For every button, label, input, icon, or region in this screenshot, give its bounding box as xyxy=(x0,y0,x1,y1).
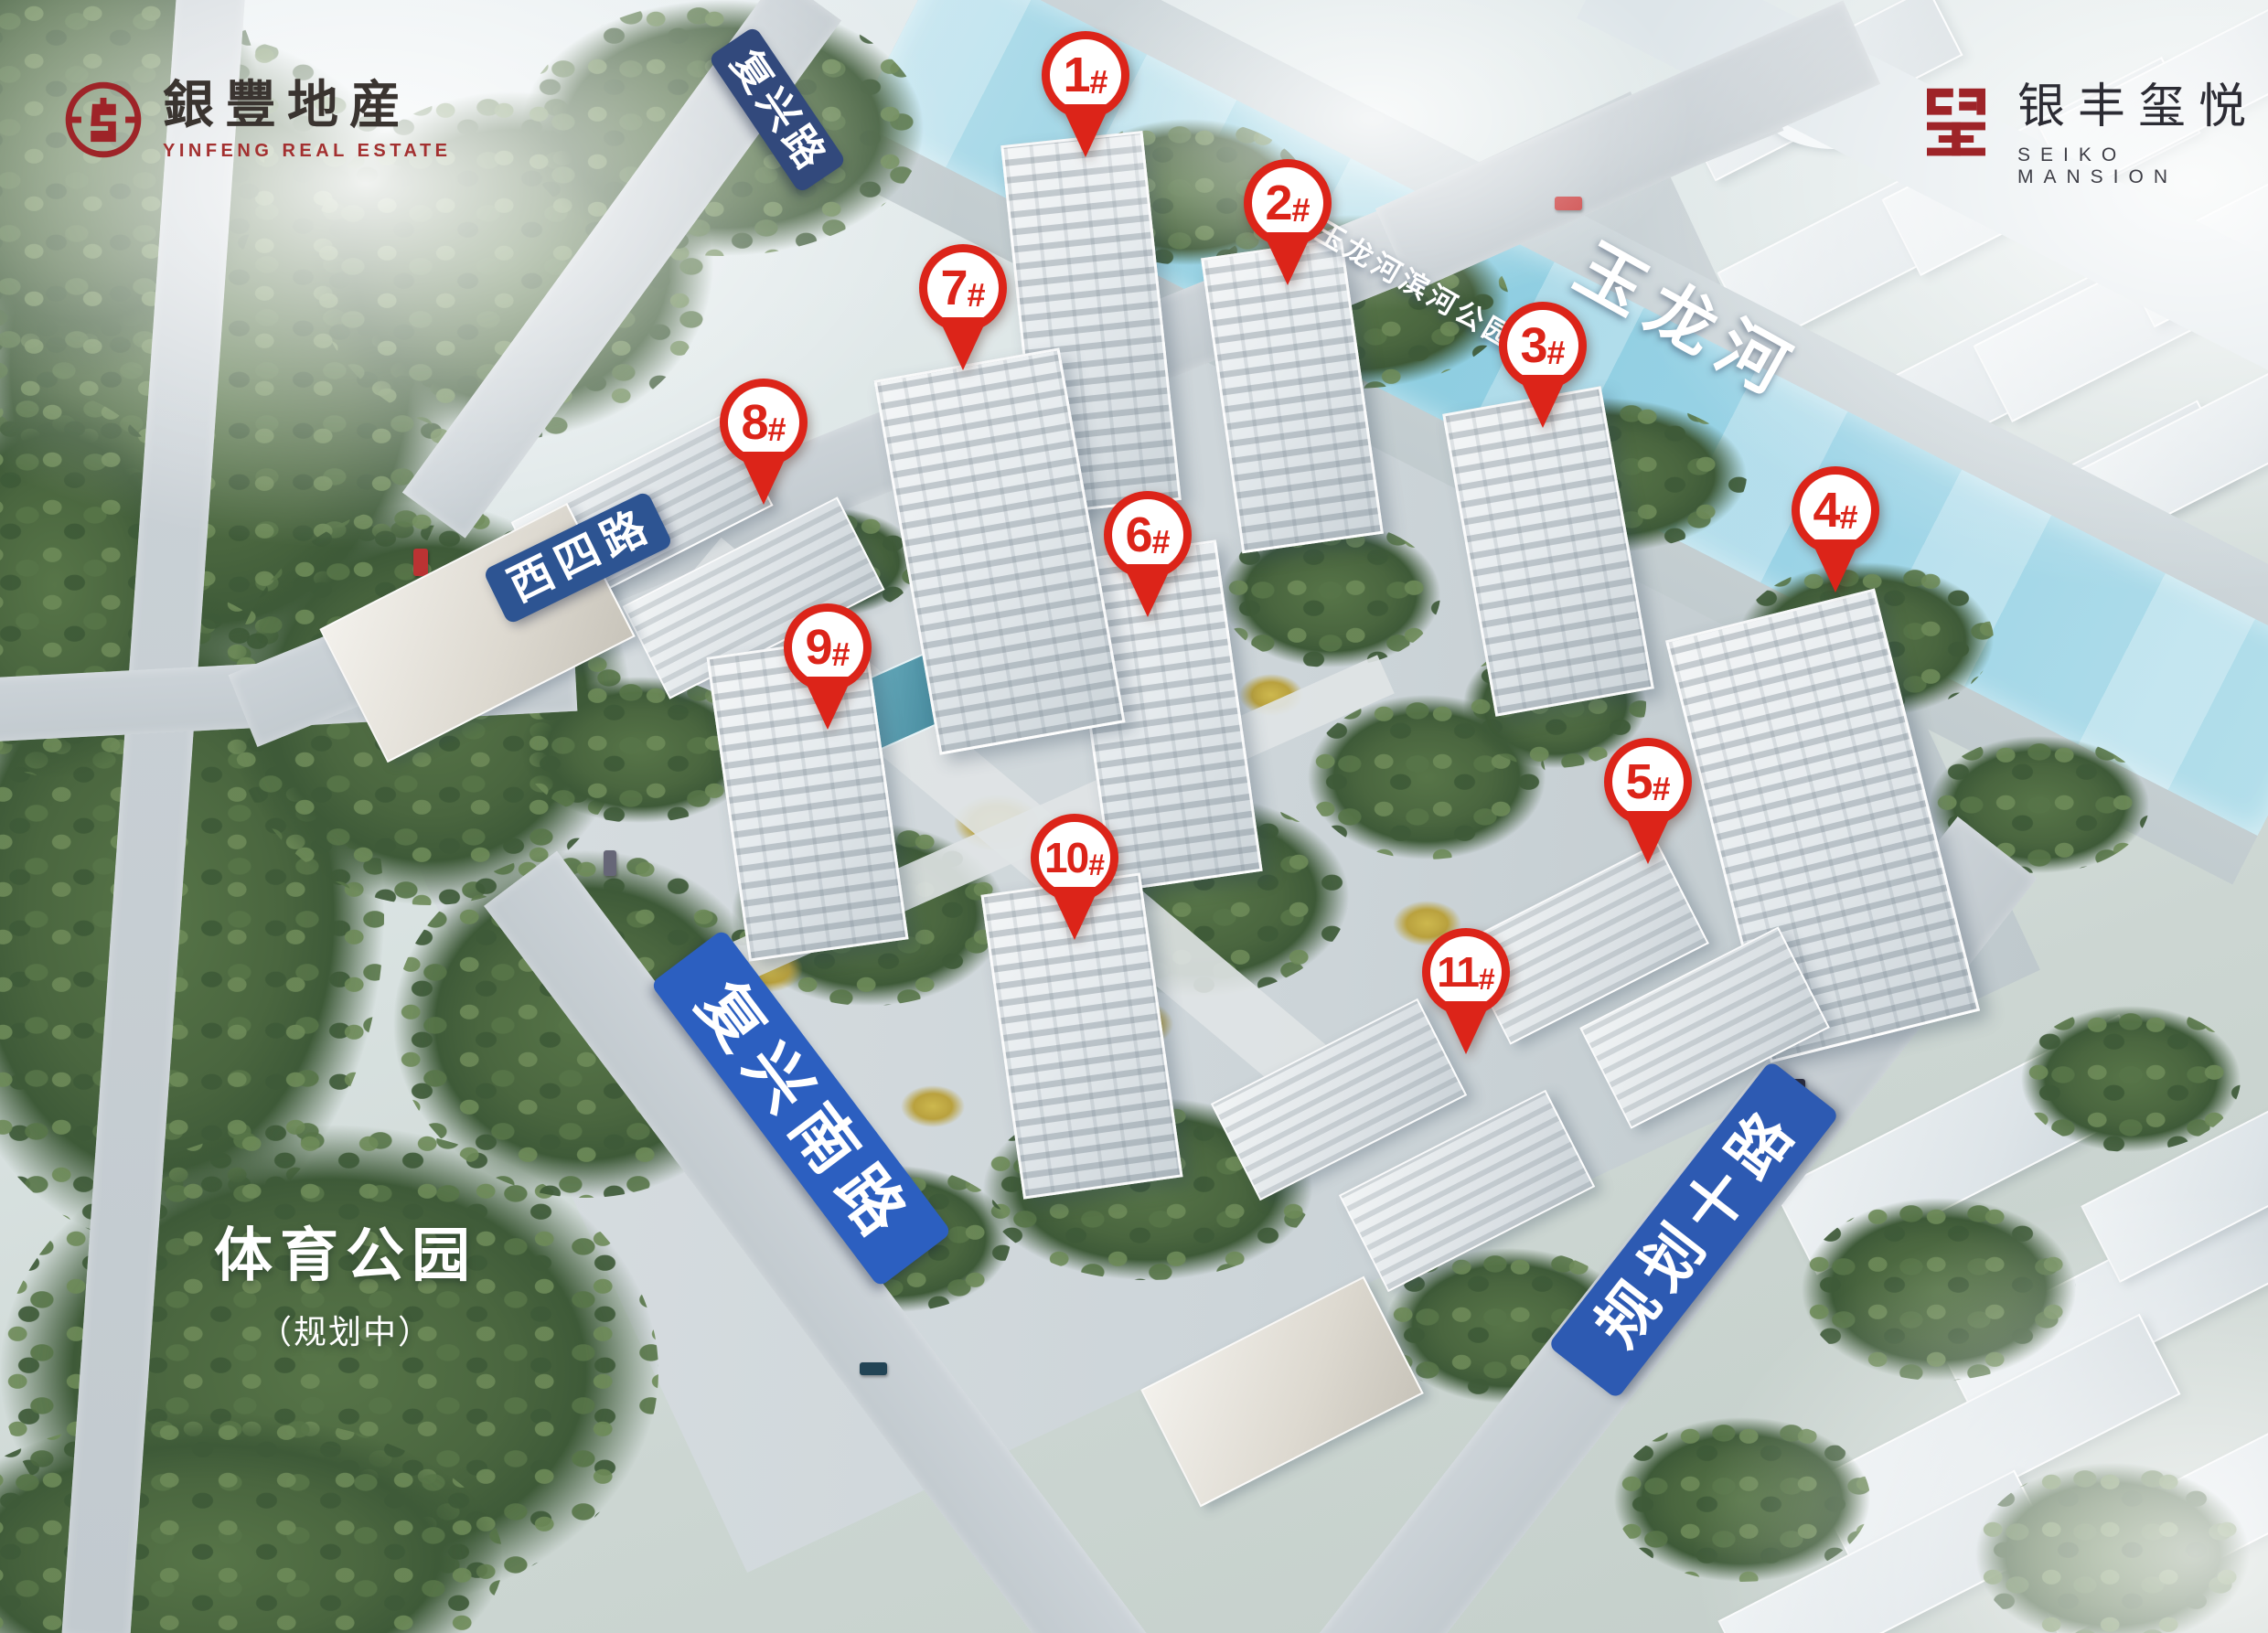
building-pin-10[interactable]: 10# xyxy=(1031,814,1118,940)
building-pin-7[interactable]: 7# xyxy=(919,244,1007,370)
pin-pointer xyxy=(1050,887,1099,940)
pin-hash-icon: # xyxy=(1547,334,1566,372)
pin-pointer xyxy=(1263,232,1312,285)
pin-number: 8 xyxy=(741,394,766,451)
pin-pointer xyxy=(803,677,852,730)
pin-number: 2 xyxy=(1265,175,1290,231)
forest-grove xyxy=(1975,1463,2250,1633)
project-logo: 银丰玺悦 SEIKO MANSION xyxy=(1919,84,2268,188)
pin-number: 7 xyxy=(940,260,966,316)
car xyxy=(604,850,616,876)
pin-number: 11 xyxy=(1437,947,1478,997)
pin-hash-icon: # xyxy=(1292,191,1311,229)
area-label-subtitle: （规划中） xyxy=(214,1306,477,1353)
car xyxy=(860,1362,887,1375)
pin-pointer xyxy=(1811,539,1860,592)
building-pin-2[interactable]: 2# xyxy=(1244,159,1332,285)
pin-number: 1 xyxy=(1063,47,1088,103)
pin-number: 5 xyxy=(1625,753,1651,810)
pin-pointer xyxy=(1441,1001,1491,1054)
yinfeng-circle-seal-icon xyxy=(64,80,143,159)
pin-pointer xyxy=(1623,811,1673,864)
pin-pointer xyxy=(1123,564,1172,617)
pin-pointer xyxy=(739,452,788,505)
pin-hash-icon: # xyxy=(1152,523,1171,561)
forest-grove xyxy=(1614,1417,1870,1582)
car xyxy=(413,549,428,576)
building-pin-11[interactable]: 11# xyxy=(1422,928,1510,1054)
pin-number: 4 xyxy=(1813,482,1838,539)
area-label-title: 体育公园 xyxy=(214,1209,477,1293)
developer-name-cn: 銀豐地産 xyxy=(163,80,452,132)
pin-number: 10 xyxy=(1044,833,1087,882)
car xyxy=(1555,197,1582,210)
pin-number: 3 xyxy=(1520,317,1546,374)
pin-hash-icon: # xyxy=(1088,849,1105,882)
pin-number: 9 xyxy=(805,619,830,676)
building-pin-9[interactable]: 9# xyxy=(784,603,872,730)
pin-hash-icon: # xyxy=(1479,963,1495,997)
building-pin-5[interactable]: 5# xyxy=(1604,738,1692,864)
forest-grove xyxy=(2021,1006,2241,1152)
pin-hash-icon: # xyxy=(1840,498,1858,537)
forest-grove xyxy=(1802,1198,2076,1381)
pin-pointer xyxy=(1518,375,1567,428)
developer-logo: 銀豐地産 YINFENG REAL ESTATE xyxy=(64,80,452,162)
pin-hash-icon: # xyxy=(968,276,986,315)
building-pin-3[interactable]: 3# xyxy=(1499,302,1587,428)
building-pin-6[interactable]: 6# xyxy=(1104,491,1192,617)
building-pin-8[interactable]: 8# xyxy=(720,379,808,505)
project-name-en: SEIKO MANSION xyxy=(2017,144,2268,188)
building-pin-1[interactable]: 1# xyxy=(1042,31,1129,157)
pin-hash-icon: # xyxy=(768,411,786,449)
pin-number: 6 xyxy=(1125,507,1150,563)
masterplan-aerial-rendering: 复兴路西四路复兴南路规划十路玉龙河玉龙河滨河公园体育公园（规划中） 1#2#3#… xyxy=(0,0,2268,1633)
pin-hash-icon: # xyxy=(1090,63,1108,101)
pin-hash-icon: # xyxy=(832,635,850,674)
xi-square-seal-icon xyxy=(1919,84,1994,157)
pin-pointer xyxy=(938,317,988,370)
project-name-cn: 银丰玺悦 xyxy=(2017,84,2268,132)
autumn-grove xyxy=(901,1085,965,1127)
area-label-sports-park: 体育公园（规划中） xyxy=(214,1209,477,1353)
pin-pointer xyxy=(1061,104,1110,157)
building-pin-4[interactable]: 4# xyxy=(1792,466,1879,592)
developer-name-en: YINFENG REAL ESTATE xyxy=(163,141,452,162)
pin-hash-icon: # xyxy=(1653,770,1671,808)
